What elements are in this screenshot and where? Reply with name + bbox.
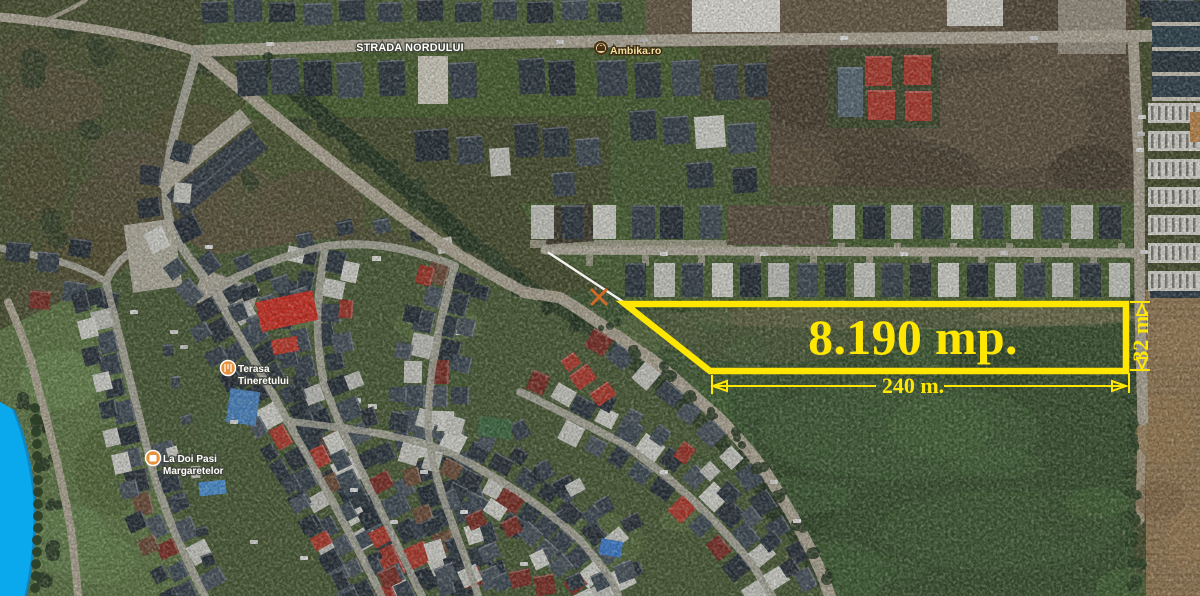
svg-text:32 m.: 32 m. bbox=[1128, 310, 1153, 361]
svg-text:8.190 mp.: 8.190 mp. bbox=[808, 309, 1018, 365]
svg-text:La Doi Pasi: La Doi Pasi bbox=[163, 454, 217, 465]
svg-text:240 m.: 240 m. bbox=[882, 373, 944, 398]
svg-text:Ambika.ro: Ambika.ro bbox=[610, 45, 661, 57]
svg-text:Tineretului: Tineretului bbox=[238, 376, 289, 387]
svg-text:STRADA NORDULUI: STRADA NORDULUI bbox=[356, 42, 464, 54]
svg-text:Margaretelor: Margaretelor bbox=[163, 466, 224, 477]
svg-text:Terasa: Terasa bbox=[238, 364, 270, 375]
